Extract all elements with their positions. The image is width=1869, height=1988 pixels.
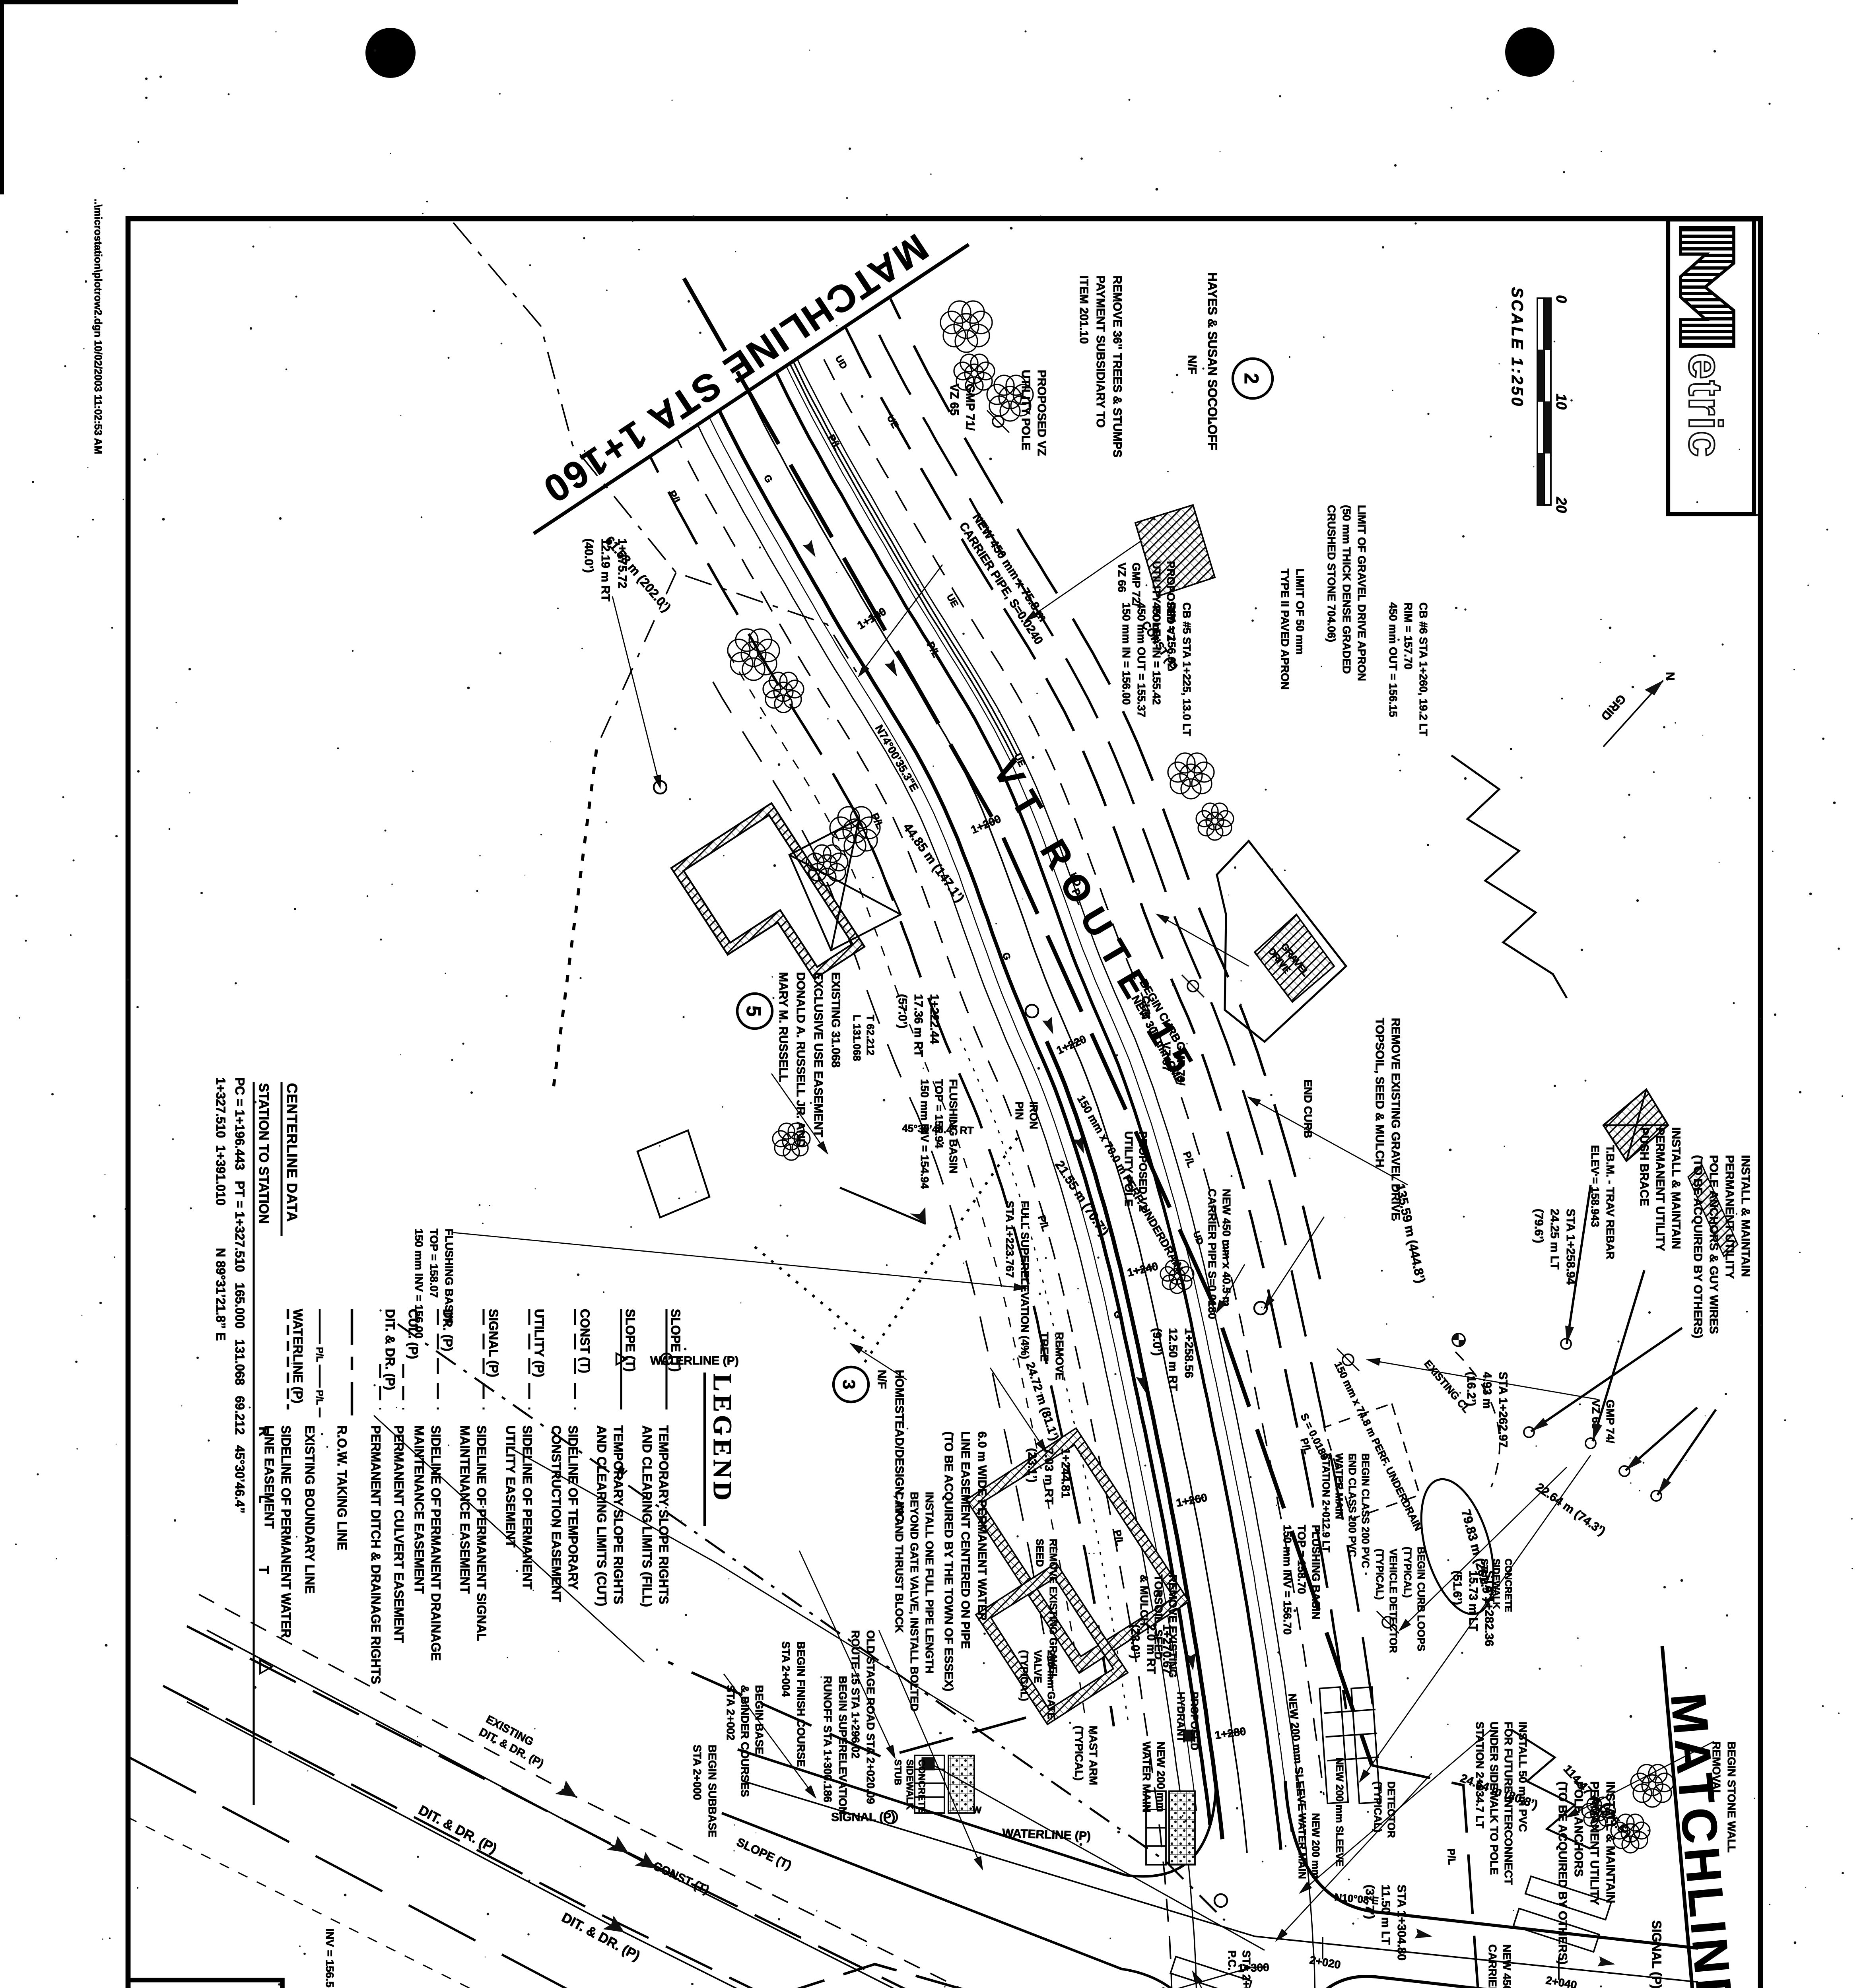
svg-text:1+258.56: 1+258.56 (1182, 1328, 1195, 1378)
svg-text:HYDRANT: HYDRANT (1175, 1692, 1187, 1742)
svg-text:CONST (T): CONST (T) (578, 1309, 592, 1373)
svg-text:BEGIN CURB LOOPS: BEGIN CURB LOOPS (1415, 1547, 1427, 1651)
svg-text:SIDELINE OF PERMANENT SIGNAL: SIDELINE OF PERMANENT SIGNAL (474, 1425, 489, 1641)
svg-text:BEGIN SUBBASE: BEGIN SUBBASE (706, 1745, 719, 1837)
svg-text:TYPE II PAVED APRON: TYPE II PAVED APRON (1279, 569, 1291, 689)
svg-text:NEW 200 mm: NEW 200 mm (1155, 1741, 1167, 1812)
svg-text:CARRIER PIPE S=0.0102: CARRIER PIPE S=0.0102 (1486, 1944, 1499, 1988)
svg-text:INSTALL 50 mm PVC: INSTALL 50 mm PVC (1517, 1722, 1529, 1832)
svg-text:(51.6’): (51.6’) (1451, 1571, 1464, 1605)
svg-text:SIDELINE OF PERMANENT: SIDELINE OF PERMANENT (520, 1425, 534, 1590)
svg-text:RIM = 156.92: RIM = 156.92 (1166, 602, 1178, 670)
svg-text:24.25 m LT: 24.25 m LT (1548, 1209, 1561, 1270)
svg-text:(TYPICAL): (TYPICAL) (1374, 1549, 1386, 1600)
svg-text:150 mm INV = 156.00: 150 mm INV = 156.00 (413, 1229, 425, 1338)
svg-text:SCALE 1:250: SCALE 1:250 (1508, 287, 1526, 408)
svg-text:6.0 m WIDE PERMANENT WATER: 6.0 m WIDE PERMANENT WATER (975, 1431, 989, 1621)
svg-text:PERMANENT UTILITY: PERMANENT UTILITY (1723, 1155, 1736, 1279)
svg-text:12.50 m RT: 12.50 m RT (1166, 1328, 1179, 1391)
svg-text:BEGIN CLASS 200 PVC: BEGIN CLASS 200 PVC (1360, 1453, 1372, 1568)
svg-text:FLUSHING BASIN: FLUSHING BASIN (443, 1229, 455, 1323)
svg-text:VZ 66: VZ 66 (1116, 563, 1128, 592)
svg-text:WATERLINE (P): WATERLINE (P) (650, 1354, 739, 1367)
svg-text:EXISTING BOUNDARY LINE: EXISTING BOUNDARY LINE (303, 1425, 317, 1594)
svg-text:150 mm INV = 154.94: 150 mm INV = 154.94 (919, 1079, 931, 1189)
svg-text:AND CLEARING LIMITS (FILL): AND CLEARING LIMITS (FILL) (640, 1425, 654, 1607)
svg-text:LEGEND: LEGEND (708, 1374, 737, 1504)
svg-text:(TO BE ACQUIRED BY OTHERS): (TO BE ACQUIRED BY OTHERS) (1556, 1781, 1569, 1965)
svg-text:(9.0’): (9.0’) (1150, 1328, 1164, 1356)
svg-text:1+175.72: 1+175.72 (616, 538, 629, 588)
svg-text:P/L: P/L (1445, 1848, 1458, 1865)
svg-text:INSTALL & MAINTAIN: INSTALL & MAINTAIN (1604, 1781, 1617, 1903)
svg-text:UTILITY (P): UTILITY (P) (532, 1309, 546, 1377)
svg-text:PERMANENT CULVERT EASEMENT: PERMANENT CULVERT EASEMENT (392, 1425, 406, 1643)
svg-text:(TYPICAL): (TYPICAL) (1402, 1547, 1414, 1598)
svg-text:WATER MAIN: WATER MAIN (1140, 1741, 1153, 1812)
svg-text:STA 1+223.767: STA 1+223.767 (1004, 1201, 1016, 1278)
svg-text:etric: etric (1679, 353, 1731, 458)
svg-text:OLD STAGE ROAD STA 2+020.09: OLD STAGE ROAD STA 2+020.09 (865, 1630, 877, 1804)
svg-text:10: 10 (1553, 394, 1570, 410)
svg-text:VEHICLE DETECTOR: VEHICLE DETECTOR (1387, 1549, 1399, 1653)
svg-text:GMP 71/: GMP 71/ (964, 384, 977, 431)
svg-text:450 mm IN = 155.42: 450 mm IN = 155.42 (1150, 602, 1163, 705)
svg-text:BEGIN SUPERELEVATION: BEGIN SUPERELEVATION (837, 1676, 849, 1815)
svg-text:L 131.068: L 131.068 (851, 1015, 863, 1061)
svg-text:11.50 m LT: 11.50 m LT (1379, 1885, 1392, 1945)
svg-text:LIMIT OF GRAVEL DRIVE APRON: LIMIT OF GRAVEL DRIVE APRON (1356, 505, 1368, 681)
svg-text:N/F: N/F (1185, 355, 1199, 374)
svg-text:(40.0’): (40.0’) (582, 538, 595, 573)
svg-text:T.B.M. - TRAV REBAR: T.B.M. - TRAV REBAR (1604, 1145, 1616, 1259)
svg-text:T: T (256, 1566, 271, 1574)
svg-text:POLE ANCHORS & GUY WIRES: POLE ANCHORS & GUY WIRES (1707, 1155, 1720, 1334)
svg-text:SIDELINE OF PERMANENT DRAINAGE: SIDELINE OF PERMANENT DRAINAGE (429, 1425, 443, 1661)
svg-text:T 62.212: T 62.212 (865, 1015, 876, 1056)
svg-text:MARY M. RUSSELL: MARY M. RUSSELL (777, 972, 790, 1082)
svg-text:(23.1’): (23.1’) (1026, 1448, 1039, 1483)
svg-text:IRON: IRON (1028, 1101, 1040, 1129)
svg-text:UTILITY EASEMENT: UTILITY EASEMENT (503, 1425, 518, 1547)
svg-text:STA 1+304.80: STA 1+304.80 (1395, 1885, 1408, 1961)
svg-text:WATER MAIN: WATER MAIN (1296, 1813, 1308, 1879)
svg-text:RIM = 157.70: RIM = 157.70 (1402, 602, 1414, 670)
svg-text:450 mm OUT = 155.37: 450 mm OUT = 155.37 (1135, 602, 1148, 717)
svg-text:LIMIT OF 50 mm: LIMIT OF 50 mm (1294, 569, 1306, 654)
svg-text:3: 3 (839, 1380, 859, 1389)
svg-text:CRUSHED STONE 704.06): CRUSHED STONE 704.06) (1325, 505, 1338, 642)
svg-text:STUB: STUB (1479, 1559, 1490, 1584)
svg-text:VZ 65: VZ 65 (948, 384, 961, 415)
svg-text:150 mm IN = 156.00: 150 mm IN = 156.00 (1120, 602, 1133, 705)
svg-text:R: R (256, 1427, 271, 1437)
svg-text:(TYPICAL): (TYPICAL) (1073, 1726, 1085, 1780)
svg-text:NEW 450 mm x 25.3 m: NEW 450 mm x 25.3 m (1501, 1944, 1513, 1988)
svg-text:ITEM 201.10: ITEM 201.10 (1077, 276, 1090, 344)
svg-text:FLUSHING BASIN: FLUSHING BASIN (1310, 1525, 1322, 1619)
svg-text:R.O.W. TAKING LINE: R.O.W. TAKING LINE (335, 1425, 349, 1550)
svg-text:20: 20 (1553, 497, 1570, 513)
svg-text:DETECTOR: DETECTOR (1385, 1781, 1397, 1838)
svg-text:GMP 74/: GMP 74/ (1604, 1400, 1616, 1443)
svg-text:PIN: PIN (1013, 1101, 1026, 1120)
svg-text:17.36 m RT: 17.36 m RT (912, 994, 925, 1057)
svg-text:450 mm OUT = 156.15: 450 mm OUT = 156.15 (1387, 602, 1399, 717)
svg-text:REMOVAL: REMOVAL (1710, 1741, 1723, 1796)
svg-text:PC = 1+196.443 PT = 1+327.51: PC = 1+196.443 PT = 1+327.510 165.000 13… (233, 1077, 247, 1513)
svg-text:L: L (256, 1495, 271, 1503)
svg-text:(50 mm THICK DENSE GRADED: (50 mm THICK DENSE GRADED (1341, 505, 1353, 674)
svg-text:FULL SUPERELEVATION (4%): FULL SUPERELEVATION (4%) (1019, 1201, 1031, 1359)
svg-text:RUNOFF STA 1+300.186: RUNOFF STA 1+300.186 (822, 1676, 834, 1802)
svg-text:TOP = 158.70: TOP = 158.70 (1296, 1525, 1308, 1594)
svg-text:BEGIN BASE: BEGIN BASE (753, 1685, 765, 1754)
svg-text:2: 2 (1240, 373, 1263, 384)
svg-text:STA 2+037: STA 2+037 (1240, 1950, 1253, 1988)
svg-text:HAYES & SUSAN SOCOLOFF: HAYES & SUSAN SOCOLOFF (1205, 272, 1220, 450)
svg-text:PAYMENT SUBSIDIARY TO: PAYMENT SUBSIDIARY TO (1094, 276, 1107, 428)
svg-text:SEED: SEED (1034, 1539, 1046, 1567)
svg-text:W: W (972, 1805, 982, 1816)
svg-text:& MULCH: & MULCH (1138, 1574, 1150, 1626)
svg-text:SIDEWALK: SIDEWALK (904, 1759, 915, 1810)
svg-text:TOPSOIL, SEED: TOPSOIL, SEED (1152, 1574, 1165, 1660)
svg-text:150 mm INV = 156.70: 150 mm INV = 156.70 (1281, 1525, 1294, 1635)
svg-text:SIGNAL (P): SIGNAL (P) (486, 1309, 501, 1377)
svg-text:STA 2+004: STA 2+004 (780, 1641, 792, 1697)
svg-text:FLUSHING BASIN: FLUSHING BASIN (947, 1079, 960, 1174)
svg-text:WATER MAIN: WATER MAIN (1333, 1453, 1345, 1519)
svg-text:CENTERLINE DATA: CENTERLINE DATA (284, 1083, 300, 1222)
svg-text:BEGIN STONE WALL: BEGIN STONE WALL (1725, 1741, 1738, 1853)
svg-text:CAP AND THRUST BLOCK: CAP AND THRUST BLOCK (893, 1492, 905, 1633)
svg-text:VALVE: VALVE (1032, 1650, 1044, 1683)
svg-text:INSTALL & MAINTAIN: INSTALL & MAINTAIN (1739, 1155, 1752, 1277)
svg-text:WATERLINE (P): WATERLINE (P) (291, 1309, 305, 1404)
svg-text:MAINTENANCE EASEMENT: MAINTENANCE EASEMENT (412, 1425, 426, 1594)
svg-text:UTILITY POLE: UTILITY POLE (1019, 370, 1032, 450)
svg-text:REMOVE 36" TREES & STUMPS: REMOVE 36" TREES & STUMPS (1111, 276, 1124, 458)
svg-text:AND CLEARING LIMITS (CUT): AND CLEARING LIMITS (CUT) (595, 1425, 609, 1606)
svg-text:STUB: STUB (892, 1759, 903, 1785)
svg-text:MAST ARM: MAST ARM (1087, 1726, 1100, 1785)
svg-text:REMOVE EXISTING: REMOVE EXISTING (1167, 1574, 1179, 1678)
svg-text:CB #6 STA 1+260, 19.2 LT: CB #6 STA 1+260, 19.2 LT (1417, 602, 1430, 736)
svg-text:(TO BE ACQUIRED BY OTHERS): (TO BE ACQUIRED BY OTHERS) (1691, 1155, 1704, 1338)
svg-text:SLOPE (T): SLOPE (T) (623, 1309, 637, 1372)
svg-text:SIDELINE OF PERMANENT WATER: SIDELINE OF PERMANENT WATER (279, 1425, 293, 1638)
svg-text:5: 5 (742, 1006, 765, 1017)
svg-text:END CLASS 200 PVC: END CLASS 200 PVC (1346, 1453, 1358, 1557)
svg-text:P/L: P/L (314, 1347, 325, 1362)
svg-text:TOPSOIL, SEED & MULCH: TOPSOIL, SEED & MULCH (1373, 1018, 1386, 1167)
svg-text:..\microstation\plotrow2.dgn: ..\microstation\plotrow2.dgn 10/02/2003 … (92, 199, 104, 454)
svg-text:STA 2+000: STA 2+000 (691, 1745, 703, 1800)
svg-text:TOP = 156.94: TOP = 156.94 (933, 1079, 945, 1149)
svg-text:NEW 200 mm: NEW 200 mm (1310, 1813, 1322, 1879)
svg-text:N/F: N/F (875, 1370, 888, 1389)
svg-text:CONSTRUCTION EASEMENT: CONSTRUCTION EASEMENT (549, 1425, 563, 1602)
svg-text:INV = 156.51: INV = 156.51 (324, 1928, 336, 1988)
svg-text:STA 2+002: STA 2+002 (725, 1685, 737, 1740)
svg-text:(TYPICAL): (TYPICAL) (1018, 1650, 1030, 1701)
svg-text:PROPOSED: PROPOSED (1189, 1692, 1201, 1750)
svg-text:TOP = 158.07: TOP = 158.07 (428, 1229, 440, 1298)
svg-text:BEGIN FINISH COURSE: BEGIN FINISH COURSE (795, 1641, 807, 1767)
svg-text:MAINTENANCE EASEMENT: MAINTENANCE EASEMENT (458, 1425, 472, 1594)
svg-text:CONCRETE: CONCRETE (916, 1759, 927, 1813)
svg-text:(57.0’): (57.0’) (896, 994, 909, 1029)
svg-text:END CURB: END CURB (1302, 1079, 1314, 1138)
svg-text:EXCLUSIVE USE EASEMENT: EXCLUSIVE USE EASEMENT (812, 972, 825, 1137)
svg-text:(TO BE ACQUIRED BY THE TOWN OF: (TO BE ACQUIRED BY THE TOWN OF ESSEX) (942, 1431, 955, 1691)
svg-text:REMOVE: REMOVE (1053, 1332, 1066, 1380)
svg-text:(TYPICAL): (TYPICAL) (1372, 1781, 1384, 1833)
svg-text:7.03 m RT: 7.03 m RT (1042, 1448, 1055, 1505)
svg-text:1+244.81: 1+244.81 (1059, 1448, 1072, 1498)
svg-text:P/L: P/L (314, 1390, 325, 1405)
svg-text:LINE EASEMENT CENTERED ON PIPE: LINE EASEMENT CENTERED ON PIPE (959, 1431, 972, 1649)
svg-text:TEMPORARY SLOPE RIGHTS: TEMPORARY SLOPE RIGHTS (611, 1425, 626, 1604)
svg-text:DIT. & DR. (P): DIT. & DR. (P) (383, 1309, 397, 1390)
svg-text:(79.6’): (79.6’) (1532, 1209, 1545, 1243)
svg-text:TREE: TREE (1038, 1332, 1051, 1362)
svg-text:SIDELINE OF TEMPORARY: SIDELINE OF TEMPORARY (566, 1425, 580, 1590)
svg-text:P.C.: P.C. (1226, 1950, 1238, 1971)
svg-text:ROUTE 15 STA 1+296.02: ROUTE 15 STA 1+296.02 (849, 1630, 862, 1759)
svg-text:PUSH BRACE: PUSH BRACE (1638, 1127, 1651, 1206)
svg-text:NEW 200 mm SLEEVE: NEW 200 mm SLEEVE (1334, 1757, 1346, 1867)
svg-text:N: N (1663, 672, 1677, 681)
svg-text:STA 1+258.94: STA 1+258.94 (1564, 1209, 1577, 1285)
svg-text:CARRIER PIPE S=0.0180: CARRIER PIPE S=0.0180 (1206, 1189, 1218, 1319)
svg-text:LINE EASEMENT: LINE EASEMENT (262, 1425, 276, 1529)
svg-text:REMOVE EXISTING GRAVEL: REMOVE EXISTING GRAVEL (1047, 1539, 1059, 1680)
svg-text:BEYOND GATE VALVE, INSTALL BOL: BEYOND GATE VALVE, INSTALL BOLTED (908, 1492, 921, 1711)
svg-text:STATION 2+034.7 LT: STATION 2+034.7 LT (1474, 1722, 1486, 1828)
svg-text:1+327.510 1+391.010: 1+327.510 1+391.010 N 89°31’21.8” E (214, 1077, 228, 1341)
svg-text:(23.0’): (23.0’) (1129, 1624, 1142, 1659)
svg-text:INSTALL ONE FULL PIPE LENGTH: INSTALL ONE FULL PIPE LENGTH (923, 1492, 936, 1673)
svg-text:GMP 72/: GMP 72/ (1130, 563, 1142, 606)
svg-text:0: 0 (1553, 295, 1570, 303)
svg-text:12.19 m RT: 12.19 m RT (599, 538, 612, 601)
svg-text:SIGNAL (P): SIGNAL (P) (1649, 1920, 1664, 1988)
svg-text:CB #5 STA 1+225, 13.0 LT: CB #5 STA 1+225, 13.0 LT (1181, 602, 1193, 736)
svg-text:1+222.44: 1+222.44 (928, 994, 941, 1044)
svg-text:INSTALL & MAINTAIN: INSTALL & MAINTAIN (1669, 1127, 1682, 1249)
svg-text:PROPOSED VZ: PROPOSED VZ (1035, 370, 1048, 456)
svg-text:PERMANENT UTILITY: PERMANENT UTILITY (1653, 1127, 1667, 1251)
svg-text:EXISTING 31.068: EXISTING 31.068 (829, 972, 842, 1068)
svg-text:STATION TO STATION: STATION TO STATION (256, 1083, 271, 1224)
svg-text:PERMANENT DITCH & DRAINAGE RIG: PERMANENT DITCH & DRAINAGE RIGHTS (369, 1425, 383, 1684)
